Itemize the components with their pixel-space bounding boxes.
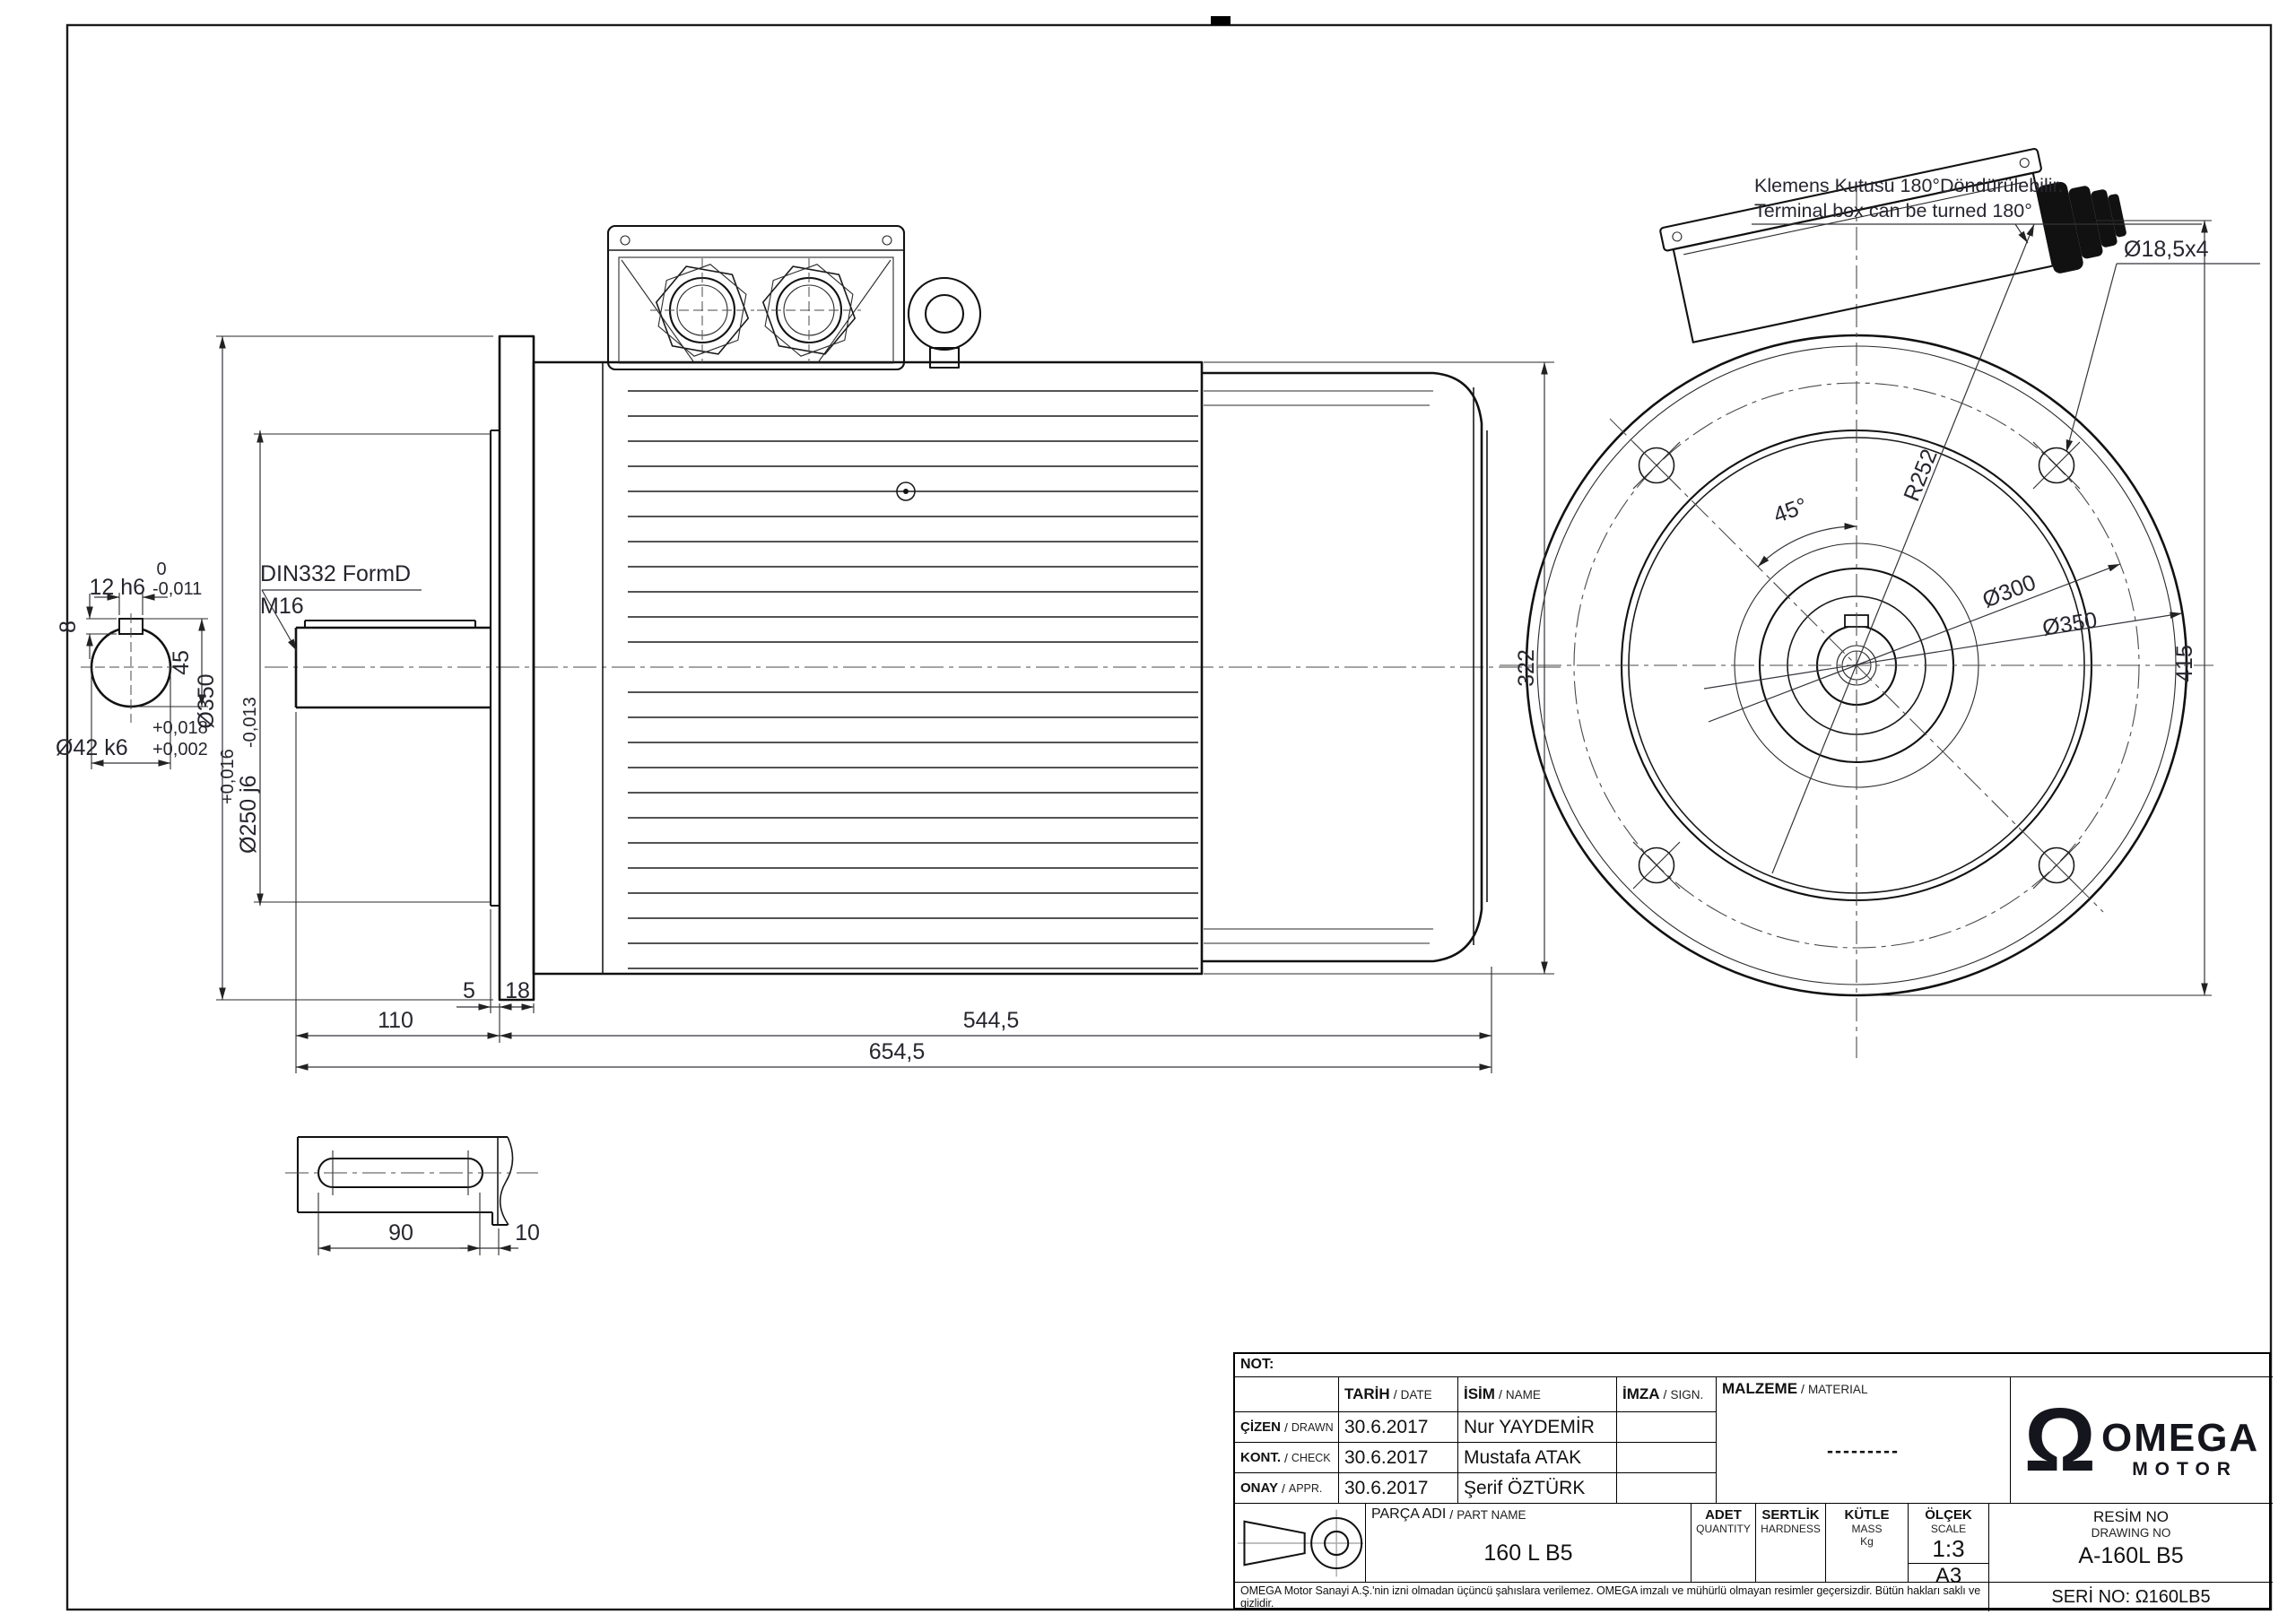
header-sign: İMZA/SIGN.	[1616, 1376, 1716, 1411]
material-value: ---------	[1827, 1441, 1900, 1462]
dim-flange-dia: Ø350	[194, 673, 219, 728]
drawing-no-cell: RESİM NO DRAWING NO A-160L B5	[1988, 1503, 2273, 1582]
note-row: NOT:	[1235, 1354, 2273, 1376]
dim-shoulder: 10	[515, 1220, 540, 1245]
cable-gland	[650, 258, 754, 362]
shaft	[296, 621, 491, 707]
row-check-sign	[1616, 1442, 1716, 1472]
scale-cell: ÖLÇEK SCALE 1:3 A3	[1908, 1503, 1988, 1582]
row-drawn-date: 30.6.2017	[1338, 1411, 1457, 1442]
lifting-eye	[909, 278, 980, 368]
drawing-no-value: A-160L B5	[2078, 1543, 2183, 1569]
serial-cell: SERİ NO: Ω160LB5	[1988, 1582, 2273, 1611]
dim-holes: Ø18,5x4	[2124, 237, 2209, 262]
header-date: TARİH/DATE	[1338, 1376, 1457, 1411]
row-drawn-label: ÇİZEN/DRAWN	[1235, 1411, 1338, 1442]
material-cell: MALZEME/MATERIAL ---------	[1716, 1376, 2010, 1503]
logo-cell: Ω OMEGA MOTOR	[2010, 1376, 2273, 1503]
dim-box-radius: R252	[1899, 446, 1942, 505]
front-centerlines	[1500, 188, 2213, 1058]
dim-body-length: 544,5	[963, 1008, 1020, 1033]
dim-hole-angle: 45°	[1770, 493, 1811, 528]
drawing-sheet: Klemens Kutusu 180°Döndürülebilir. Termi…	[0, 0, 2296, 1623]
terminal-box	[608, 226, 904, 369]
row-check-label: KONT./CHECK	[1235, 1442, 1338, 1472]
flange	[491, 336, 534, 1000]
side-view	[265, 226, 1565, 1000]
row-appr-label: ONAY/APPR.	[1235, 1472, 1338, 1503]
dim-shaft-length: 110	[378, 1008, 413, 1033]
dim-spigot-dia: Ø250 j6	[236, 775, 261, 854]
keyway-detail	[285, 1137, 538, 1225]
projection-symbol	[1238, 1506, 1363, 1581]
dim-keyheight: 8	[56, 621, 81, 633]
row-check-name: Mustafa ATAK	[1457, 1442, 1616, 1472]
dim-centerheight: 45	[169, 650, 194, 675]
mass-cell: KÜTLE MASS Kg	[1825, 1503, 1908, 1582]
header-name: İSİM/NAME	[1457, 1376, 1616, 1411]
dim-keywidth-tol-upper: 0	[156, 560, 166, 579]
qty-cell: ADET QUANTITY	[1691, 1503, 1755, 1582]
hardness-cell: SERTLİK HARDNESS	[1755, 1503, 1825, 1582]
row-appr-name: Şerif ÖZTÜRK	[1457, 1472, 1616, 1503]
dim-keywidth: 12 h6	[89, 575, 145, 600]
disclaimer-cell: OMEGA Motor Sanayi A.Ş.'nin izni olmadan…	[1235, 1582, 1988, 1611]
front-view	[1500, 134, 2213, 1058]
fold-mark	[1211, 16, 1231, 25]
title-block: NOT: TARİH/DATE İSİM/NAME İMZA/SIGN. MAL…	[1233, 1352, 2271, 1610]
note-terminal-en: Terminal box can be turned 180°	[1754, 200, 2032, 221]
dim-shaftdia: Ø42 k6	[56, 735, 128, 760]
row-appr-date: 30.6.2017	[1338, 1472, 1457, 1503]
labels: Klemens Kutusu 180°Döndürülebilir. Termi…	[56, 175, 2209, 1245]
label-centerhole-thread: M16	[260, 594, 304, 619]
dim-spigot-tol-upper: +0,016	[218, 749, 238, 804]
row-drawn-name: Nur YAYDEMİR	[1457, 1411, 1616, 1442]
dim-keyway-length: 90	[388, 1220, 413, 1245]
dimensions	[86, 221, 2260, 1255]
part-name-value: 160 L B5	[1483, 1541, 1572, 1567]
dim-spigot-gap: 5	[463, 978, 475, 1003]
company-logo: Ω OMEGA MOTOR	[2011, 1400, 2273, 1480]
dim-keywidth-tol-lower: -0,011	[152, 579, 202, 599]
logo-sub: MOTOR	[2132, 1459, 2238, 1480]
row-appr-sign	[1616, 1472, 1716, 1503]
motor-body	[534, 362, 1202, 974]
not-label: NOT:	[1240, 1357, 1274, 1374]
dim-spigot-tol-lower: -0,013	[240, 697, 260, 748]
header-empty	[1235, 1376, 1338, 1411]
dim-overall-height: 415	[2172, 645, 2197, 682]
cable-gland	[757, 258, 861, 362]
part-name-cell: PARÇA ADI/PART NAME 160 L B5	[1365, 1503, 1691, 1582]
dim-frame-height: 322	[1514, 649, 1539, 687]
dim-total-length: 654,5	[869, 1039, 926, 1064]
label-centerhole-std: DIN332 FormD	[260, 561, 411, 586]
terminal-box-front	[1660, 134, 2132, 353]
logo-name: OMEGA	[2101, 1416, 2259, 1461]
row-drawn-sign	[1616, 1411, 1716, 1442]
dim-flange-thickness: 18	[505, 978, 530, 1003]
row-check-date: 30.6.2017	[1338, 1442, 1457, 1472]
projection-symbol-cell	[1235, 1503, 1365, 1582]
omega-symbol: Ω	[2024, 1402, 2096, 1479]
scale-value: 1:3	[1932, 1535, 1964, 1563]
note-terminal-tr: Klemens Kutusu 180°Döndürülebilir.	[1754, 175, 2063, 196]
cooling-fins	[628, 391, 1198, 968]
dim-shaft-tol-lower: +0,002	[152, 740, 208, 759]
